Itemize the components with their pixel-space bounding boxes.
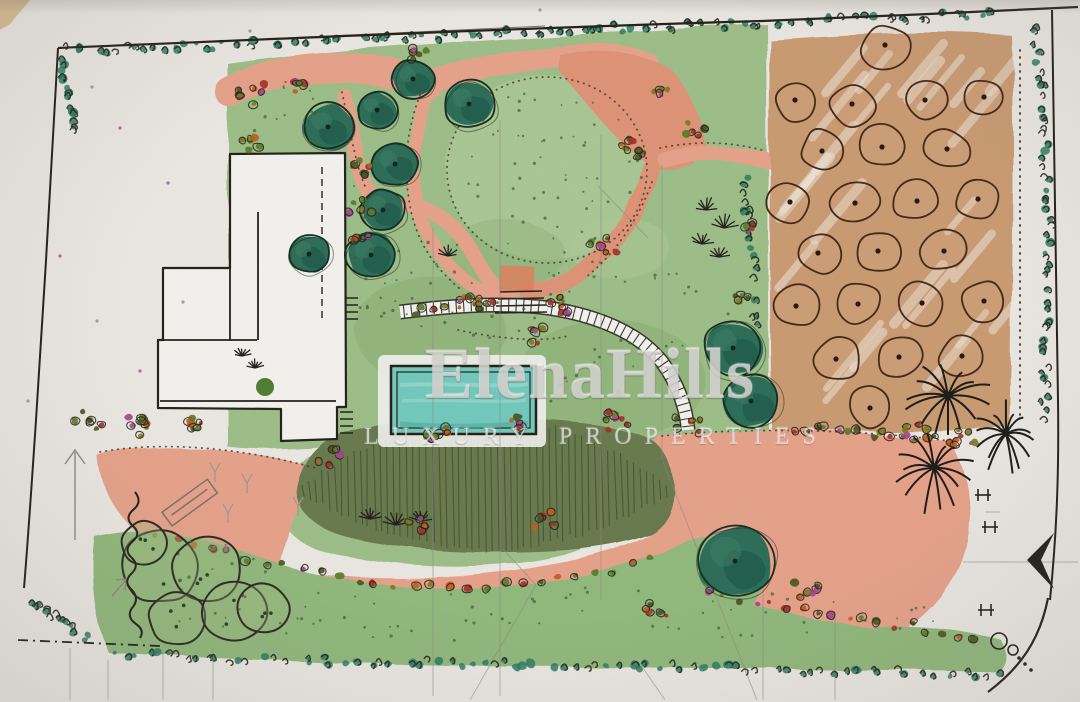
paper-texture (0, 0, 1080, 702)
site-plan-photo: ElenaHills LUXURY PROPERTIES (0, 0, 1080, 702)
site-plan-drawing (0, 0, 1080, 702)
